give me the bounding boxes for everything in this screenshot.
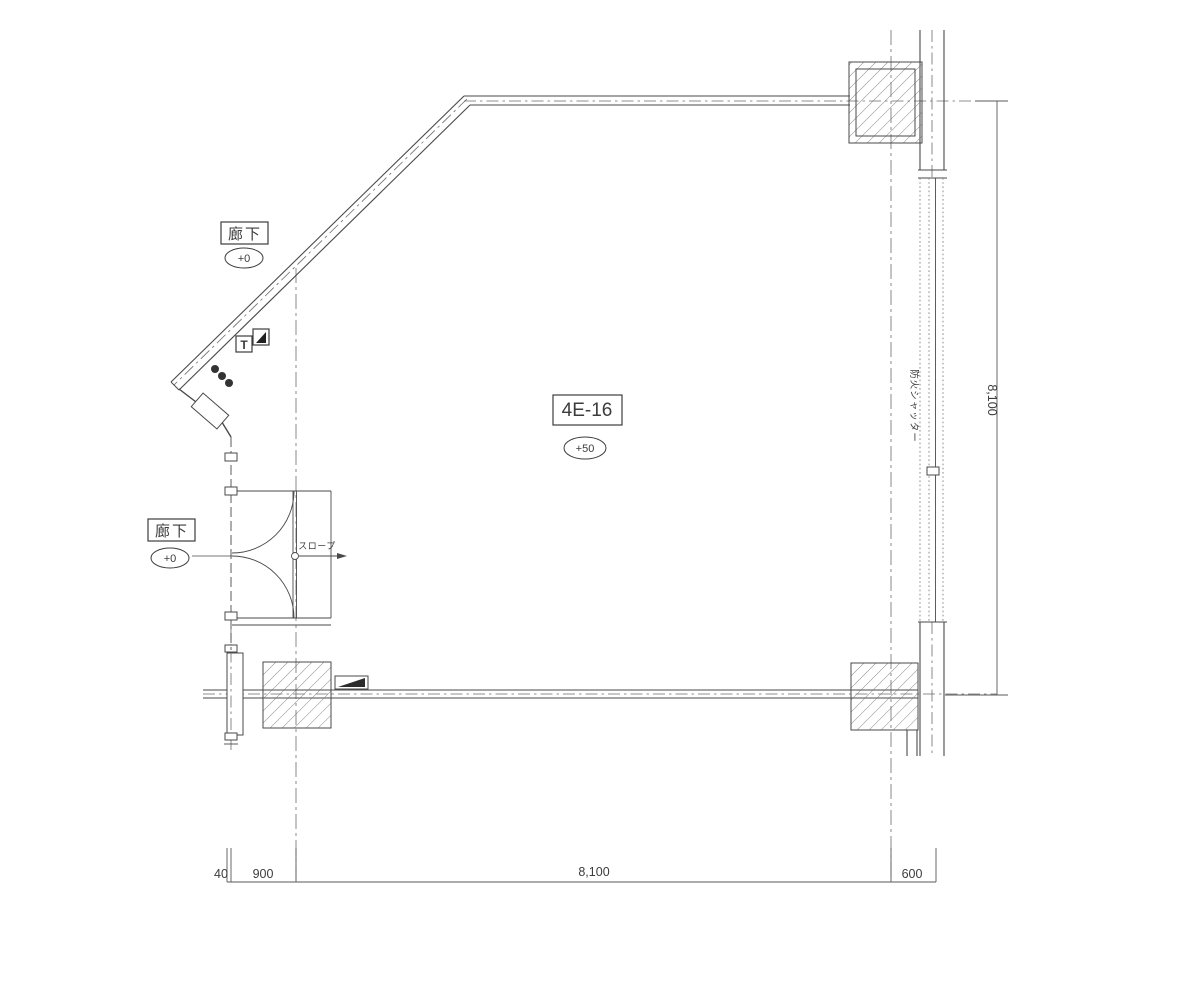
jamb-clip-2 <box>225 487 237 495</box>
door-pivot-circle <box>292 553 299 560</box>
dim-value-8100-bottom: 8,100 <box>578 865 609 879</box>
corridor-left-label: 廊下 <box>155 523 189 540</box>
diagonal-wall-inner <box>179 105 470 390</box>
corridor-top-label: 廊下 <box>228 226 262 243</box>
diagonal-wall-endcap <box>171 382 179 390</box>
jamb-clip-3 <box>225 612 237 620</box>
dot-symbol-1 <box>211 365 219 373</box>
t-symbol-glyph: T <box>240 338 248 352</box>
dim-value-900: 900 <box>253 867 274 881</box>
floor-plan-canvas: T 4E-16 +50 廊下 +0 廊下 +0 スロープ 防火シャッター <box>0 0 1180 1008</box>
dim-value-40: 40 <box>214 867 228 881</box>
door-swing-arc-lower <box>232 556 294 618</box>
diagonal-wall-outer <box>171 96 464 382</box>
wall-symbols: T <box>211 329 269 387</box>
fire-shutter-label: 防火シャッター <box>908 369 920 443</box>
dim-value-8100-right: 8,100 <box>985 384 999 415</box>
dim-value-600: 600 <box>902 867 923 881</box>
dimension-texts: 40 900 8,100 600 8,100 <box>214 384 999 881</box>
centerline-diagonal-wall <box>174 99 467 385</box>
pilaster-body <box>227 653 243 735</box>
pilaster-clip-bottom <box>225 733 237 740</box>
room-label: 4E-16 <box>562 400 613 421</box>
dot-symbol-2 <box>218 372 226 380</box>
jamb-clip-1 <box>225 453 237 461</box>
column-bottom-left <box>263 662 331 728</box>
column-top-right <box>849 62 922 143</box>
room-level: +50 <box>576 443 595 455</box>
door-swing-arc-upper <box>232 491 294 553</box>
fire-shutter-track <box>920 178 943 622</box>
slope-arrow-head <box>337 553 347 559</box>
column-bottom-right <box>851 663 918 730</box>
shutter-joint-marker <box>927 467 939 475</box>
corridor-top-level: +0 <box>238 253 251 265</box>
diagonal-door-leaf <box>179 389 231 437</box>
labels: 4E-16 +50 廊下 +0 廊下 +0 スロープ 防火シャッター <box>148 222 920 568</box>
pilaster <box>224 628 243 750</box>
slope-label: スロープ <box>298 541 335 551</box>
grid-centerlines <box>174 30 997 882</box>
floor-plan-sheet: T 4E-16 +50 廊下 +0 廊下 +0 スロープ 防火シャッター <box>0 0 1180 1008</box>
dot-symbol-3 <box>225 379 233 387</box>
slope-marker <box>335 676 368 689</box>
walls <box>171 30 947 756</box>
corridor-left-level: +0 <box>164 553 177 565</box>
